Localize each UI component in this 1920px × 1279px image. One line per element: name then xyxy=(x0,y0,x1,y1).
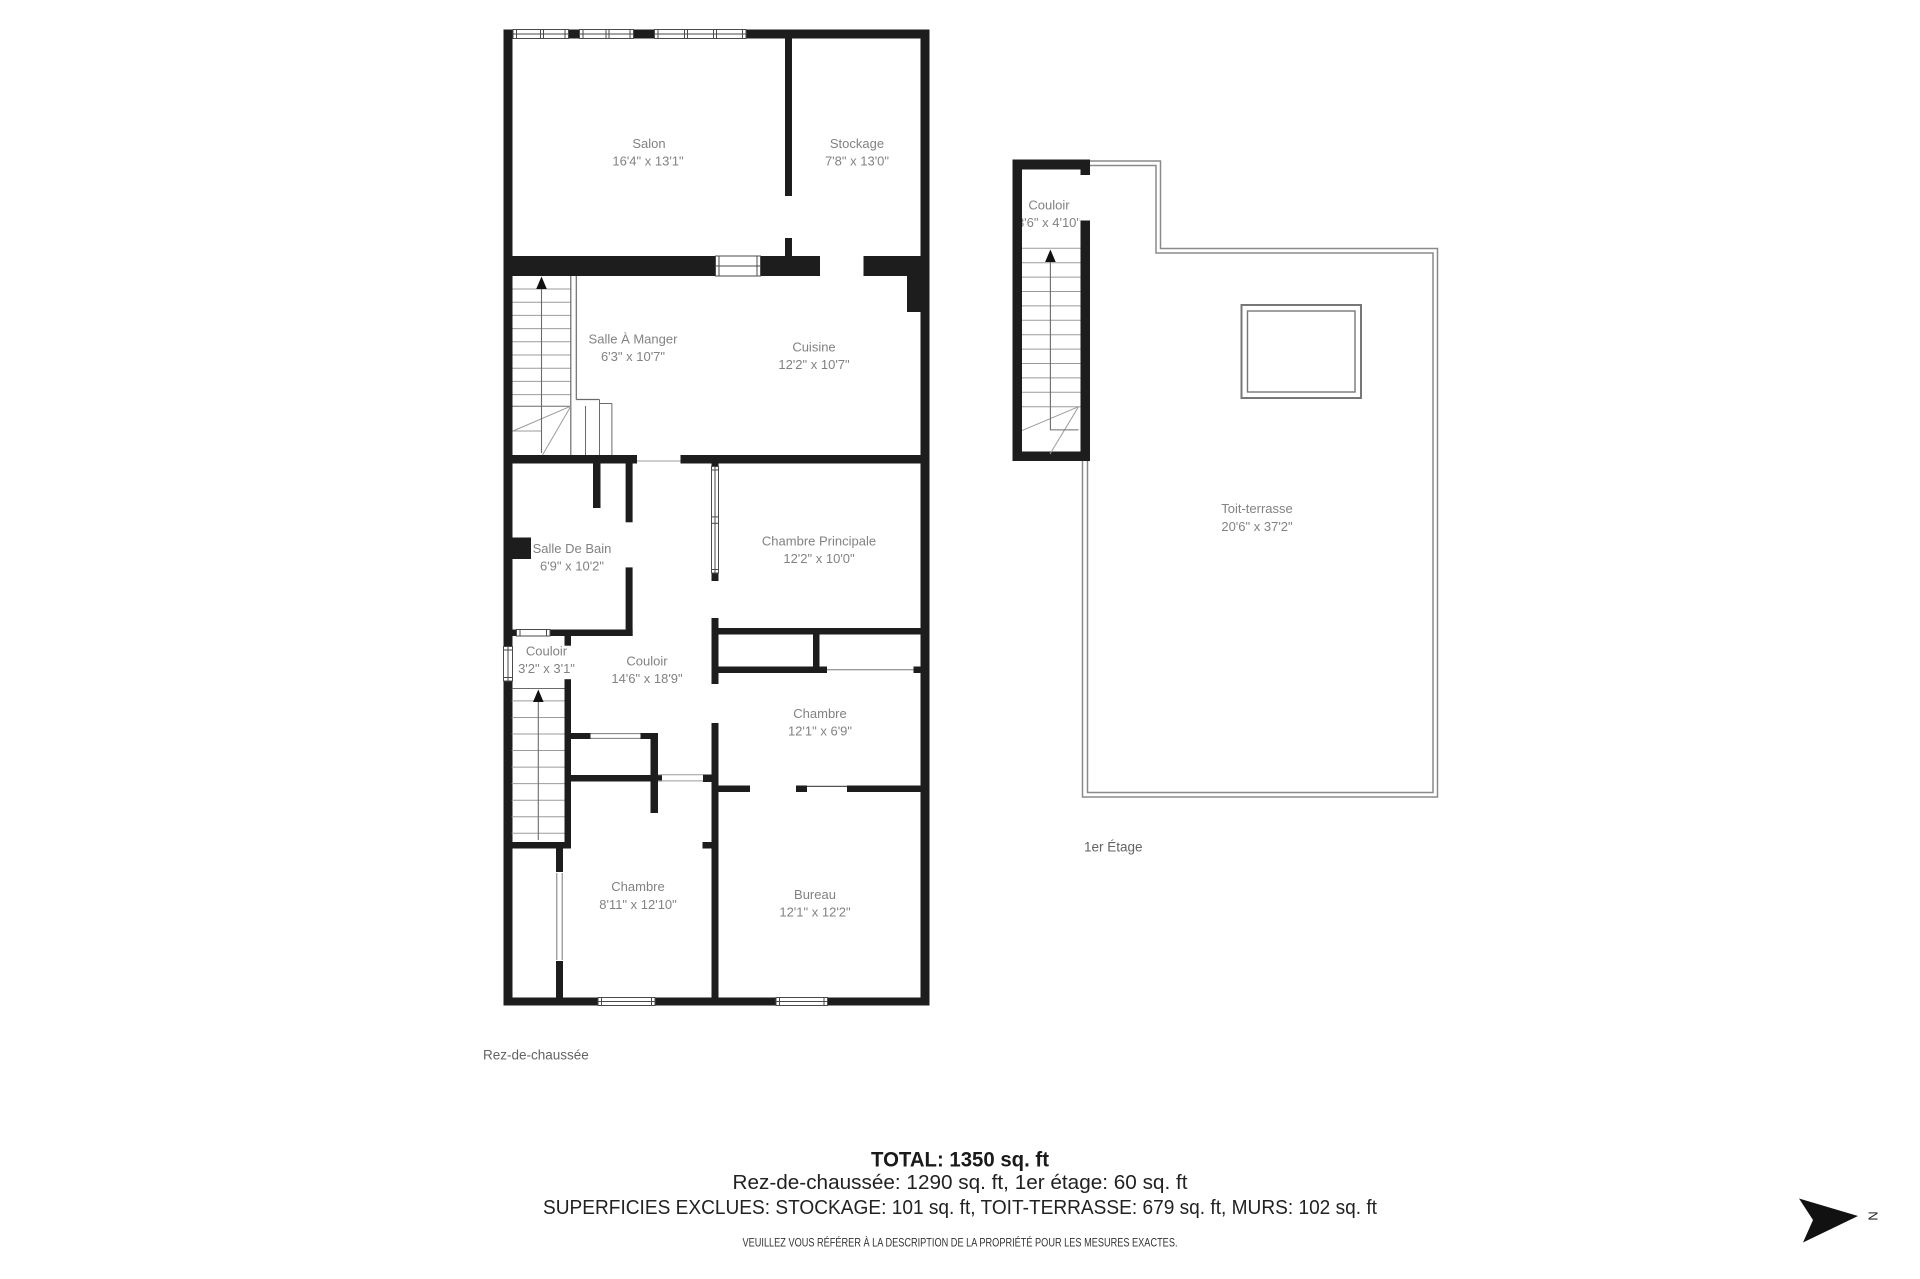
svg-text:Stockage: Stockage xyxy=(830,136,884,151)
svg-text:Rez-de-chaussée: 1290 sq. ft,: Rez-de-chaussée: 1290 sq. ft, 1er étage:… xyxy=(733,1171,1188,1194)
svg-text:Bureau: Bureau xyxy=(794,887,836,902)
svg-text:Cuisine: Cuisine xyxy=(792,340,835,355)
svg-text:Chambre: Chambre xyxy=(793,706,846,721)
svg-text:7'8" x 13'0": 7'8" x 13'0" xyxy=(825,153,889,168)
svg-text:N: N xyxy=(1866,1211,1881,1220)
svg-text:6'9" x 10'2": 6'9" x 10'2" xyxy=(540,559,604,574)
svg-text:16'4" x 13'1": 16'4" x 13'1" xyxy=(612,153,684,168)
svg-text:TOTAL: 1350 sq. ft: TOTAL: 1350 sq. ft xyxy=(871,1149,1049,1172)
svg-text:Salon: Salon xyxy=(632,136,665,151)
svg-text:12'2" x 10'7": 12'2" x 10'7" xyxy=(778,357,850,372)
svg-text:Couloir: Couloir xyxy=(626,654,668,669)
svg-text:Salle À Manger: Salle À Manger xyxy=(589,331,679,346)
svg-text:6'3" x 10'7": 6'3" x 10'7" xyxy=(601,349,665,364)
svg-text:20'6" x 37'2": 20'6" x 37'2" xyxy=(1221,519,1293,534)
svg-text:3'6" x 4'10": 3'6" x 4'10" xyxy=(1017,215,1081,230)
svg-text:Salle De Bain: Salle De Bain xyxy=(533,541,612,556)
svg-text:1er Étage: 1er Étage xyxy=(1084,839,1143,854)
svg-text:Toit-terrasse: Toit-terrasse xyxy=(1221,501,1293,516)
svg-text:Couloir: Couloir xyxy=(1028,197,1070,212)
svg-text:Couloir: Couloir xyxy=(526,643,568,658)
svg-text:Chambre: Chambre xyxy=(611,879,664,894)
svg-text:Chambre Principale: Chambre Principale xyxy=(762,533,876,548)
svg-text:8'11" x 12'10": 8'11" x 12'10" xyxy=(599,897,677,912)
svg-text:SUPERFICIES EXCLUES: STOCKAGE:: SUPERFICIES EXCLUES: STOCKAGE: 101 sq. f… xyxy=(543,1196,1377,1219)
svg-text:Rez-de-chaussée: Rez-de-chaussée xyxy=(483,1048,589,1063)
svg-text:12'1" x 6'9": 12'1" x 6'9" xyxy=(788,723,852,738)
svg-text:3'2" x 3'1": 3'2" x 3'1" xyxy=(518,661,575,676)
svg-text:12'2" x 10'0": 12'2" x 10'0" xyxy=(783,551,855,566)
svg-text:VEUILLEZ VOUS RÉFÉRER À LA DES: VEUILLEZ VOUS RÉFÉRER À LA DESCRIPTION D… xyxy=(743,1235,1178,1250)
svg-text:14'6" x 18'9": 14'6" x 18'9" xyxy=(611,671,683,686)
svg-text:12'1" x 12'2": 12'1" x 12'2" xyxy=(779,905,851,920)
